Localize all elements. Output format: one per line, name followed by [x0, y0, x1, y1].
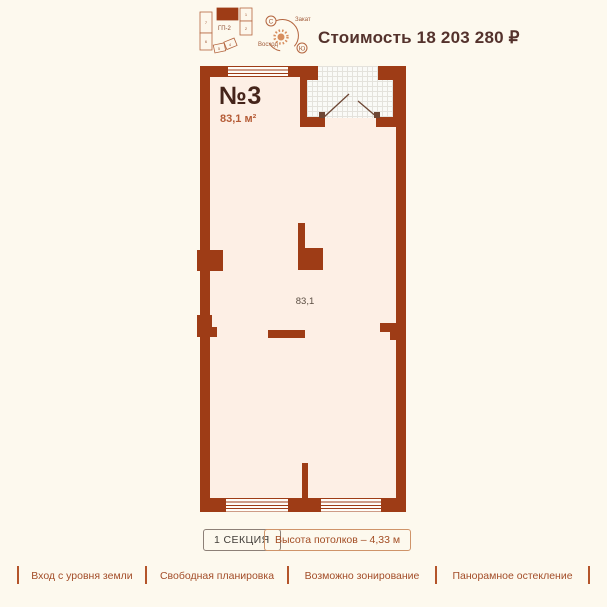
unit-area: 83,1 м²: [220, 113, 256, 125]
south-letter: Ю: [299, 45, 306, 52]
north-letter: С: [269, 18, 274, 25]
feature-item: Вход с уровня земли: [19, 570, 145, 582]
site-plan-label: ГП-2: [218, 26, 232, 32]
feature-separator: [588, 566, 590, 584]
entrance-doors-icon: [200, 66, 406, 512]
ceiling-height-badge: Высота потолков – 4,33 м: [264, 529, 411, 551]
sunset-label: Закат: [295, 17, 311, 23]
compass: С Ю Закат Восход: [257, 11, 313, 59]
site-plan-icon: 7 6 5 4 2 1 ГП-2: [197, 5, 260, 55]
sunrise-label: Восход: [258, 42, 278, 48]
feature-item: Свободная планировка: [147, 570, 287, 582]
unit-number: №3: [219, 82, 262, 111]
feature-item: Панорамное остекление: [437, 570, 588, 582]
site-plan-thumbnail[interactable]: 7 6 5 4 2 1 ГП-2: [197, 5, 260, 55]
floor-plan: №3 83,1 м² 83,1: [200, 66, 406, 512]
feature-item: Возможно зонирование: [289, 570, 435, 582]
room-area-label: 83,1: [260, 296, 350, 307]
price-label: Стоимость 18 203 280 ₽: [318, 28, 520, 48]
